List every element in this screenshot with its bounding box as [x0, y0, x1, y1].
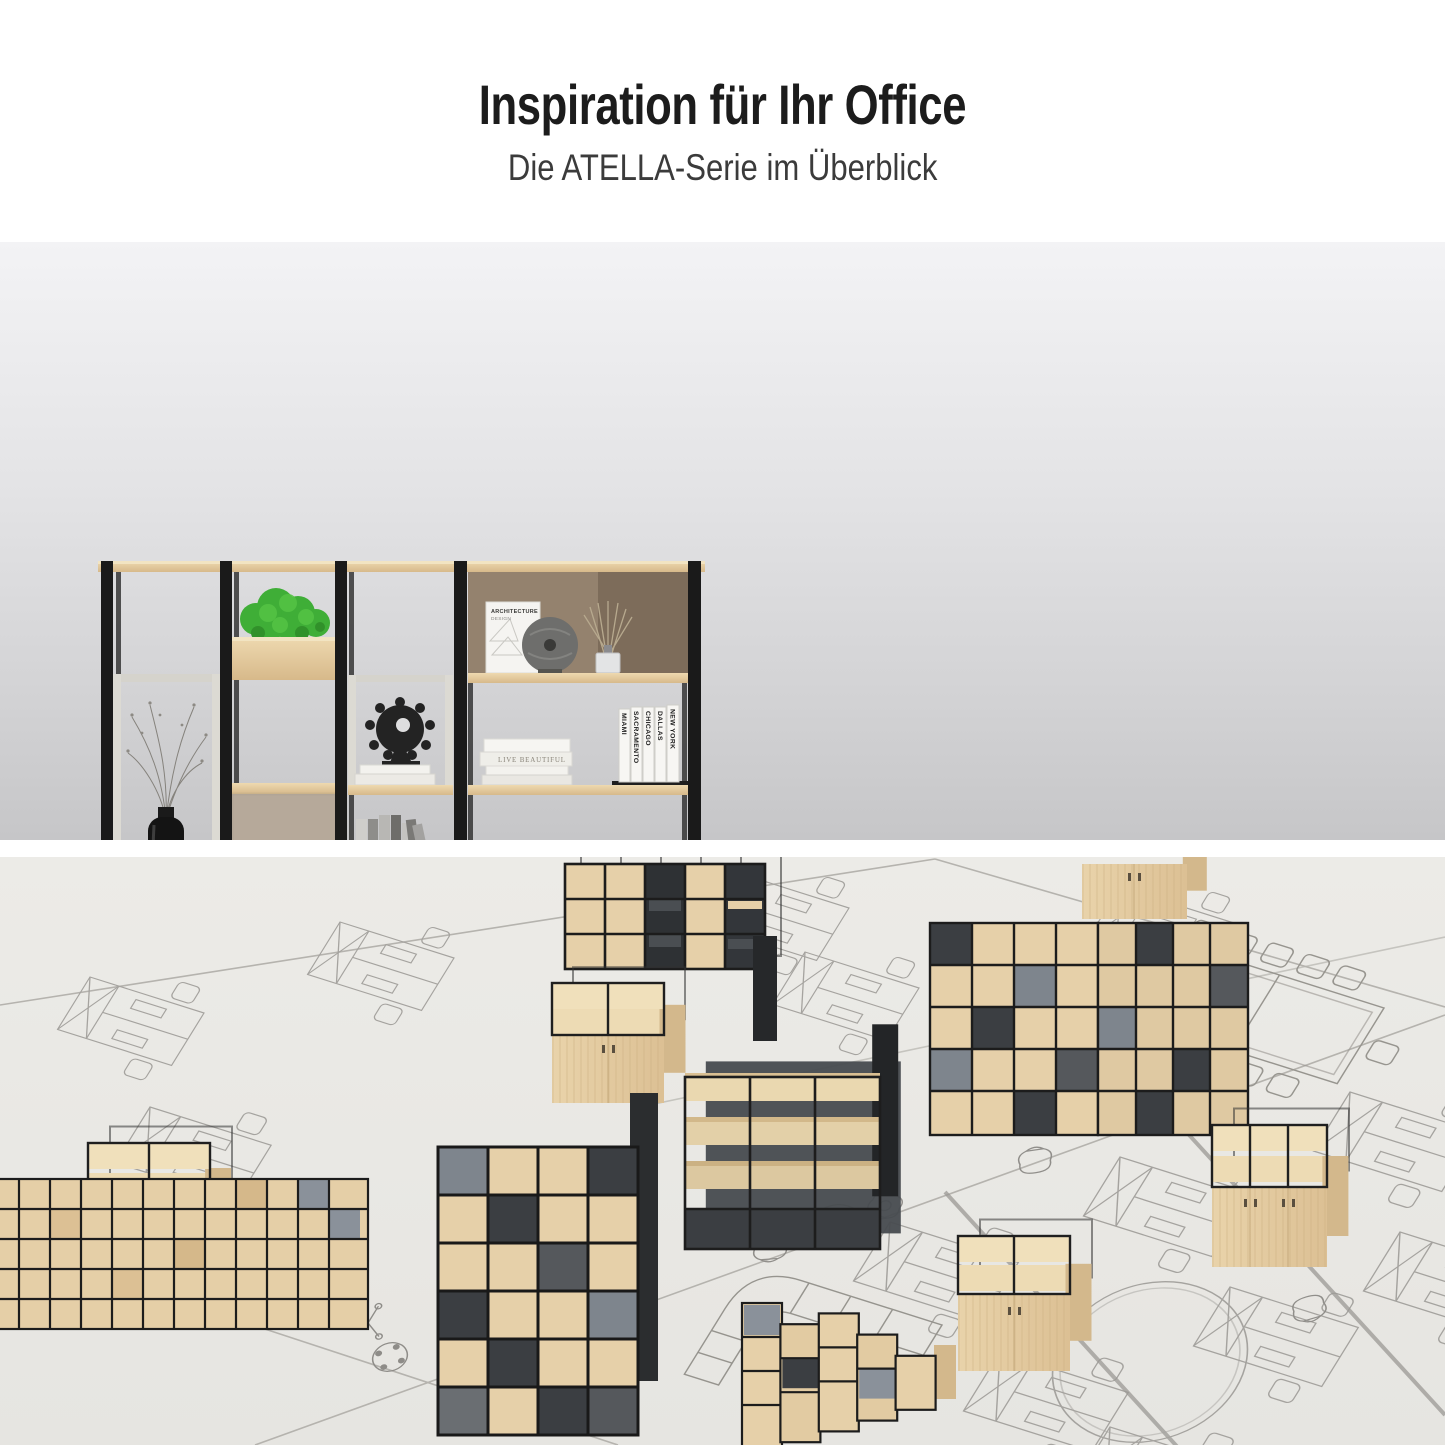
floorplan-image	[0, 857, 1445, 1445]
sideboard-center	[552, 967, 686, 1103]
stepped-shelf	[742, 1303, 956, 1445]
page-title: Inspiration für Ihr Office	[479, 72, 966, 137]
cube-wall	[0, 1179, 368, 1329]
city-book-spine: DALLAS	[656, 711, 663, 741]
room-divider-shelf	[438, 1093, 658, 1435]
hero-band: A P C S H	[0, 242, 1445, 840]
sideboard-bottom	[958, 1220, 1092, 1372]
city-book-spine: NEW YORK	[669, 709, 676, 749]
sideboard-top-right	[1082, 857, 1207, 919]
book-cover-line2: DESIGN	[491, 616, 511, 622]
header: Inspiration für Ihr Office Die ATELLA-Se…	[0, 0, 1445, 242]
stack-book-title: LIVE BEAUTIFUL	[498, 756, 566, 764]
city-book-spine: CHICAGO	[644, 711, 651, 746]
branch-buds	[126, 701, 207, 762]
stacked-books: LIVE BEAUTIFUL	[480, 739, 572, 785]
dried-branches	[128, 705, 206, 819]
sideboard-right	[1212, 1109, 1349, 1268]
city-book-spine: SACRAMENTO	[632, 711, 639, 764]
section-divider	[0, 840, 1445, 857]
corner-shelf	[930, 923, 1248, 1135]
page-subtitle: Die ATELLA-Serie im Überblick	[508, 147, 938, 189]
book-cover-line1: ARCHITECTURE	[491, 609, 538, 615]
city-books: MIAMI SACRAMENTO CHICAGO DALLAS NEW YORK	[612, 705, 688, 788]
city-book-spine: MIAMI	[620, 713, 627, 735]
floorplan	[0, 857, 1445, 1445]
gear-sculpture	[365, 697, 435, 765]
books-under-gear	[355, 765, 435, 785]
marketing-banner: Inspiration für Ihr Office Die ATELLA-Se…	[0, 0, 1445, 1445]
planter-box	[232, 637, 336, 680]
